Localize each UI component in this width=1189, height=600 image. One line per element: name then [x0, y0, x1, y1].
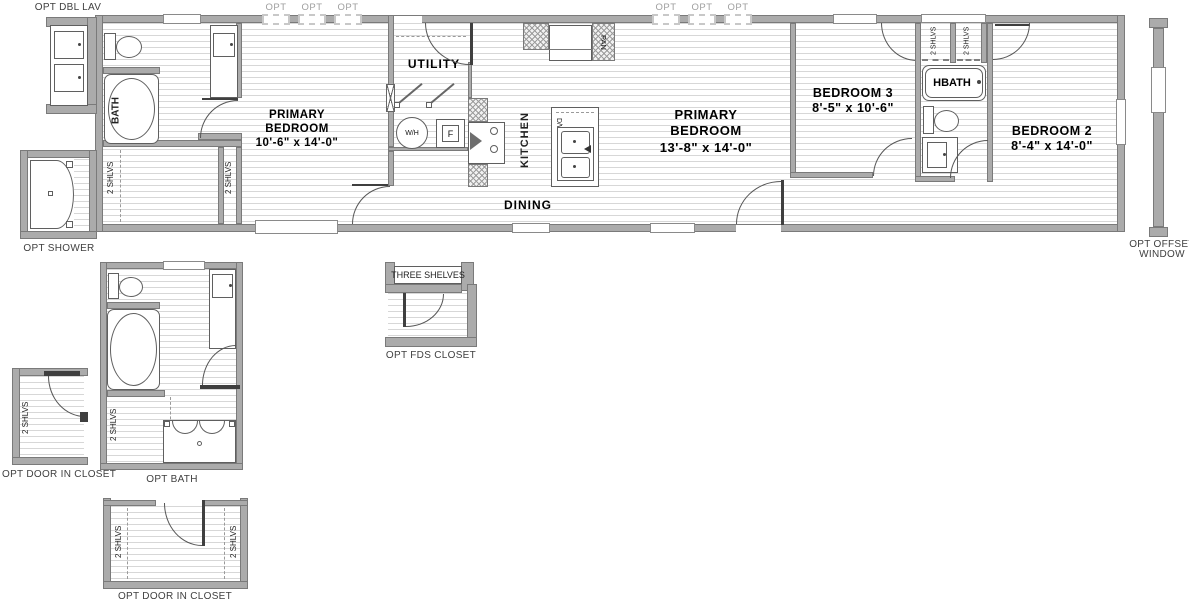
shower-seat: [164, 421, 170, 427]
drain-icon: [573, 165, 576, 168]
burner-icon: [490, 127, 498, 135]
toilet-icon: [116, 36, 142, 58]
room-label: PRIMARY: [640, 107, 772, 121]
door-leaf: [202, 500, 205, 546]
closet-shelves-label: 2 SHLVS: [227, 521, 240, 563]
faucet-icon: [78, 76, 81, 79]
toilet-icon: [108, 273, 119, 299]
opt-dbl-lav-caption: OPT DBL LAV: [28, 2, 108, 13]
closet-shelves-label: 2 SHLVS: [961, 25, 973, 57]
room-label: KITCHEN: [516, 104, 534, 176]
closet-door-line: [957, 56, 980, 61]
closet-shelves-label: 2 SHLVS: [107, 405, 120, 445]
closet-shelves-label: 2 SHLVS: [112, 521, 125, 563]
opt-window: [334, 14, 362, 25]
opt-window: [298, 14, 326, 25]
window: [1151, 67, 1166, 113]
drain-icon: [48, 191, 53, 196]
opt-window: [724, 14, 752, 25]
closet-shelves-label: 2 SHLVS: [222, 156, 235, 200]
window: [650, 223, 695, 233]
wall: [89, 150, 97, 239]
entry-door-opening: [736, 225, 781, 232]
closet-front-line: [224, 508, 225, 579]
floor-plan: OPT OPT OPT OPT OPT OPT BATH 2 SHLVS 2 S…: [0, 0, 1189, 600]
toilet-icon: [923, 106, 934, 134]
counter-crosshatch: [523, 23, 549, 50]
door-leaf: [200, 385, 240, 389]
faucet-icon: [943, 153, 946, 156]
refrigerator-icon: [549, 25, 592, 61]
window: [1116, 99, 1126, 145]
opt-window-tag: OPT: [688, 2, 716, 13]
drain-icon: [197, 441, 202, 446]
room-dims: 10'-6" x 14'-0": [230, 137, 364, 151]
faucet-icon: [977, 80, 981, 84]
faucet-icon: [229, 284, 232, 287]
opt-window: [652, 14, 680, 25]
wall: [12, 457, 88, 465]
opt-offset-window-caption: WINDOW: [1122, 249, 1189, 260]
room-label: BEDROOM 2: [992, 124, 1112, 137]
closet-shelves-label: 2 SHLVS: [19, 397, 32, 439]
wall: [103, 500, 156, 506]
opt-door-in-closet-caption: OPT DOOR IN CLOSET: [105, 591, 245, 600]
wall: [915, 176, 955, 182]
opt-window-tag: OPT: [724, 2, 752, 13]
opt-bath-caption: OPT BATH: [128, 474, 216, 485]
closet-shelves-label: 2 SHLVS: [928, 25, 940, 57]
room-dims: 8'-5" x 10'-6": [793, 101, 913, 114]
closet-door-line: [922, 56, 949, 61]
wall: [95, 224, 1125, 232]
pantry-label: PAN: [594, 26, 613, 58]
wall: [103, 67, 160, 74]
closet-shelf-line: [120, 150, 121, 222]
opt-window: [262, 14, 290, 25]
closet-front-line: [127, 508, 128, 579]
room-dims: 13'-8" x 14'-0": [630, 140, 782, 154]
wall: [1149, 18, 1168, 28]
room-label: BEDROOM 3: [798, 86, 908, 99]
opt-door-in-closet-caption: OPT DOOR IN CLOSET: [2, 469, 105, 480]
faucet-icon: [78, 43, 81, 46]
room-dims: 8'-4" x 14'-0": [987, 139, 1117, 152]
opt-window-tag: OPT: [334, 2, 362, 13]
wall: [385, 337, 477, 347]
wall: [107, 390, 165, 397]
opt-window-tag: OPT: [298, 2, 326, 13]
bath-label: BATH: [106, 83, 126, 137]
wall: [790, 172, 873, 178]
wall: [236, 147, 242, 224]
door-opening: [394, 16, 422, 23]
opt-window-tag: OPT: [652, 2, 680, 13]
opt-fds-closet-caption: OPT FDS CLOSET: [384, 350, 478, 361]
wall: [236, 262, 243, 470]
opt-window-tag: OPT: [262, 2, 290, 13]
shower-floor: [74, 159, 89, 231]
wall: [240, 498, 248, 589]
wall: [915, 23, 921, 182]
window: [512, 223, 550, 233]
toilet-icon: [934, 110, 959, 132]
toilet-icon: [104, 33, 116, 60]
door-leaf: [781, 180, 784, 225]
wall: [80, 412, 88, 422]
shower-seat: [66, 221, 73, 228]
shower-seat: [229, 421, 235, 427]
room-label: BEDROOM: [640, 123, 772, 137]
water-heater-icon: W/H: [396, 117, 428, 149]
counter-crosshatch: [468, 98, 488, 122]
shower-seat: [66, 161, 73, 168]
room-label: HBATH: [922, 77, 982, 89]
refrigerator-icon: [549, 49, 592, 50]
wall: [107, 302, 160, 309]
three-shelves-label: THREE SHELVES: [394, 266, 462, 284]
wall: [388, 151, 394, 186]
opt-window: [688, 14, 716, 25]
drain-icon: [573, 140, 576, 143]
closet-shelves-label: 2 SHLVS: [104, 156, 117, 200]
wall: [202, 500, 248, 506]
opt-shower-caption: OPT SHOWER: [13, 243, 105, 254]
wall: [20, 231, 97, 239]
wall: [467, 284, 477, 338]
range-hood-icon: [470, 132, 482, 150]
window: [833, 14, 877, 24]
room-label: BEDROOM: [237, 123, 357, 136]
wall: [950, 23, 956, 63]
window: [255, 220, 338, 234]
toilet-icon: [119, 277, 143, 297]
window: [163, 14, 201, 24]
counter-crosshatch: [468, 164, 488, 187]
bathtub-icon: [110, 313, 157, 386]
wall: [1149, 227, 1168, 237]
furnace-icon: F: [442, 125, 459, 142]
room-label: PRIMARY: [237, 109, 357, 122]
burner-icon: [490, 145, 498, 153]
wall: [103, 581, 248, 589]
wall: [1153, 28, 1164, 227]
wall: [87, 17, 97, 114]
wall: [385, 284, 462, 293]
wall: [20, 150, 97, 158]
room-label: DINING: [492, 198, 564, 211]
wall: [20, 150, 28, 239]
wall: [100, 262, 107, 470]
wall: [388, 15, 394, 147]
door-leaf: [470, 23, 473, 65]
wall: [100, 463, 243, 470]
window: [921, 14, 986, 23]
wall: [103, 498, 111, 589]
faucet-icon: [230, 43, 233, 46]
faucet-icon: [584, 145, 591, 153]
window: [163, 261, 205, 270]
